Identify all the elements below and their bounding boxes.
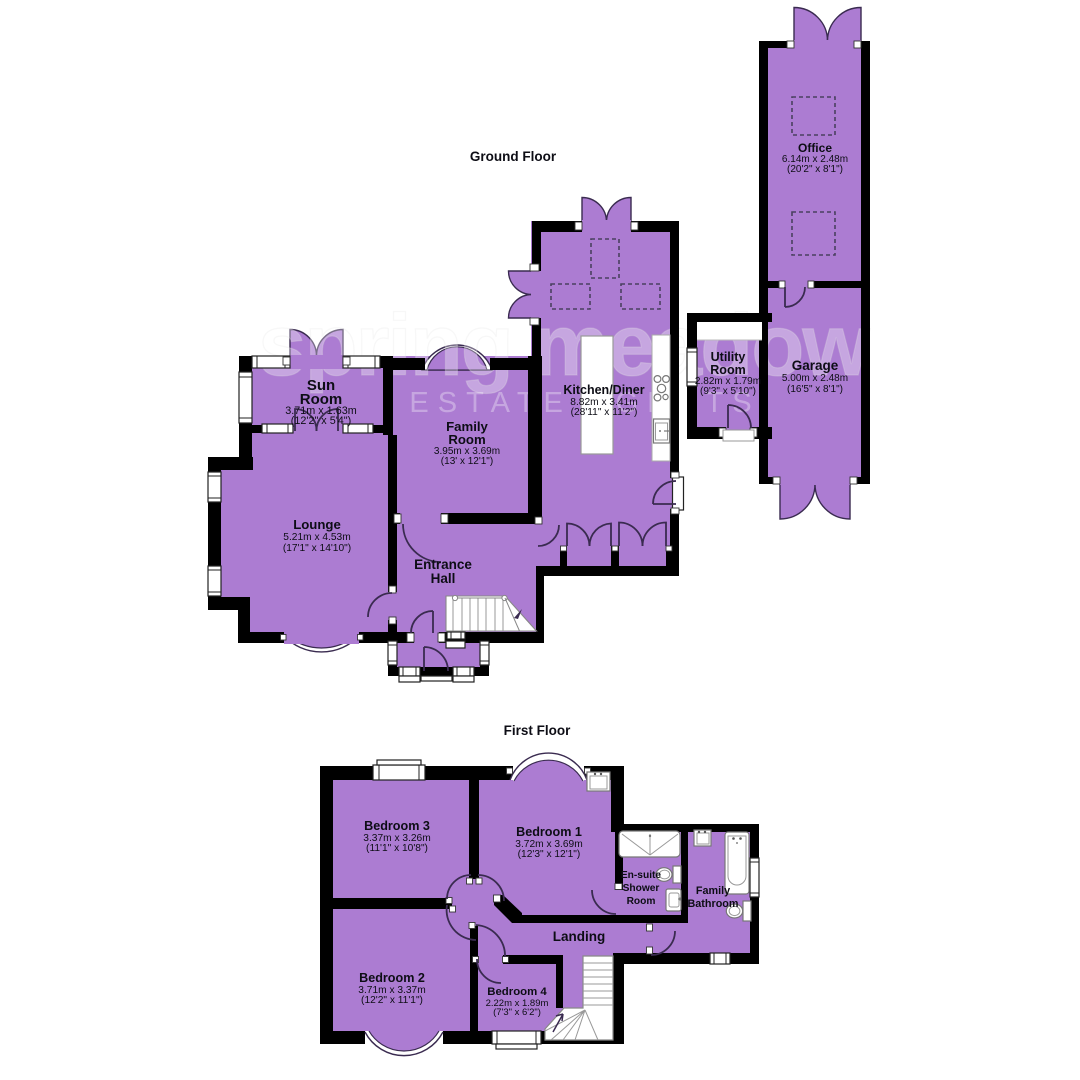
svg-text:Bedroom 3: Bedroom 3 bbox=[364, 819, 430, 833]
svg-text:(7'3" x 6'2"): (7'3" x 6'2") bbox=[493, 1007, 541, 1018]
svg-text:Kitchen/Diner: Kitchen/Diner bbox=[563, 383, 644, 397]
svg-text:En-suite: En-suite bbox=[621, 870, 662, 881]
svg-text:Shower: Shower bbox=[623, 883, 660, 894]
svg-text:(20'2" x 8'1"): (20'2" x 8'1") bbox=[787, 164, 843, 175]
svg-text:(9'3" x 5'10"): (9'3" x 5'10") bbox=[700, 386, 756, 397]
svg-text:First Floor: First Floor bbox=[504, 723, 571, 738]
svg-text:(28'11" x 11'2"): (28'11" x 11'2") bbox=[571, 407, 638, 418]
svg-text:Utility: Utility bbox=[711, 350, 746, 364]
svg-text:Landing: Landing bbox=[553, 929, 606, 944]
svg-text:Lounge: Lounge bbox=[293, 517, 341, 532]
svg-text:(12'3" x 12'1"): (12'3" x 12'1") bbox=[518, 849, 581, 860]
svg-text:(13' x 12'1"): (13' x 12'1") bbox=[441, 456, 493, 467]
svg-text:Office: Office bbox=[798, 141, 832, 155]
svg-text:(17'1" x 14'10"): (17'1" x 14'10") bbox=[283, 543, 351, 554]
svg-text:Room: Room bbox=[448, 432, 485, 447]
svg-text:Bedroom 1: Bedroom 1 bbox=[516, 825, 582, 839]
svg-text:Garage: Garage bbox=[792, 358, 839, 373]
svg-text:(12'2" x 5'4"): (12'2" x 5'4") bbox=[291, 415, 351, 427]
svg-text:(16'5" x 8'1"): (16'5" x 8'1") bbox=[787, 384, 843, 395]
svg-text:Bathroom: Bathroom bbox=[688, 898, 739, 910]
svg-text:5.00m x 2.48m: 5.00m x 2.48m bbox=[782, 373, 848, 384]
svg-text:Bedroom 2: Bedroom 2 bbox=[359, 971, 425, 985]
svg-text:Entrance: Entrance bbox=[414, 557, 472, 572]
svg-text:(12'2" x 11'1"): (12'2" x 11'1") bbox=[361, 995, 423, 1006]
svg-text:Ground Floor: Ground Floor bbox=[470, 149, 557, 164]
svg-text:Family: Family bbox=[696, 885, 730, 897]
svg-text:Bedroom 4: Bedroom 4 bbox=[487, 986, 547, 998]
svg-text:Room: Room bbox=[710, 363, 745, 377]
svg-text:(11'1" x 10'8"): (11'1" x 10'8") bbox=[366, 843, 428, 854]
svg-text:5.21m x 4.53m: 5.21m x 4.53m bbox=[283, 532, 350, 543]
svg-text:Room: Room bbox=[627, 896, 656, 907]
svg-text:Hall: Hall bbox=[431, 571, 456, 586]
